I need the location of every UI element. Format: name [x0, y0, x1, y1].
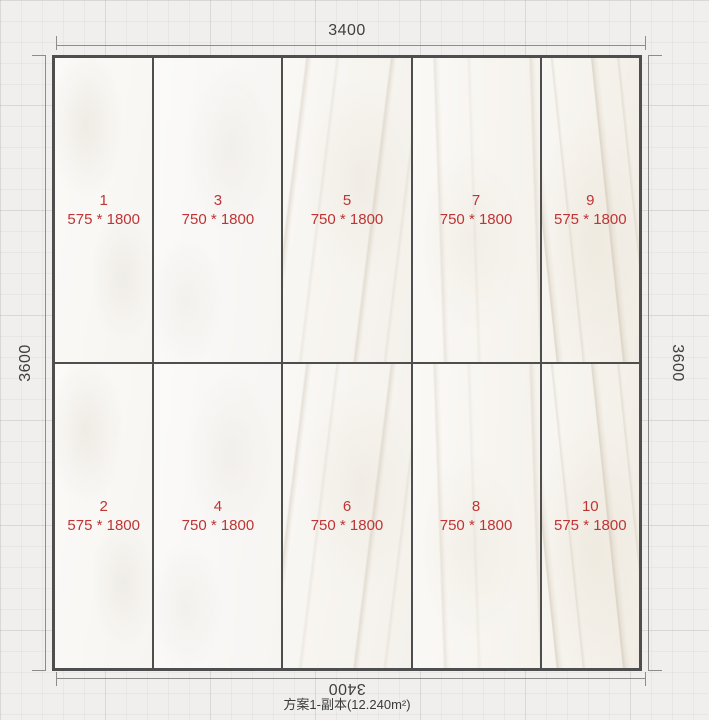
tile-cell-9[interactable]: 9 575 * 1800 — [542, 58, 639, 362]
tile-size: 750 * 1800 — [311, 516, 384, 536]
tile-label: 5 750 * 1800 — [311, 191, 384, 230]
left-dimension-line — [45, 55, 46, 671]
tile-size: 750 * 1800 — [311, 210, 384, 230]
tile-label: 8 750 * 1800 — [440, 497, 513, 536]
left-dimension-label: 3600 — [17, 344, 35, 382]
tile-label: 7 750 * 1800 — [440, 191, 513, 230]
tile-number: 2 — [67, 497, 140, 517]
right-dimension-tick-bottom — [648, 670, 662, 671]
tile-label: 6 750 * 1800 — [311, 497, 384, 536]
tile-size: 575 * 1800 — [554, 210, 627, 230]
tile-label: 1 575 * 1800 — [67, 191, 140, 230]
layout-canvas: 3400 3600 3600 3400 方案1-副本(12.240m²) 1 5… — [0, 0, 709, 720]
tile-size: 750 * 1800 — [440, 210, 513, 230]
right-dimension-line — [648, 55, 649, 671]
tile-number: 6 — [311, 497, 384, 517]
tile-number: 3 — [182, 191, 255, 211]
tile-number: 8 — [440, 497, 513, 517]
top-dimension-tick-left — [56, 36, 57, 50]
tile-number: 7 — [440, 191, 513, 211]
tile-number: 10 — [554, 497, 627, 517]
tile-cell-3[interactable]: 3 750 * 1800 — [154, 58, 281, 362]
tile-grid: 1 575 * 1800 3 750 * 1800 5 750 * 1800 7… — [52, 55, 642, 671]
tile-cell-5[interactable]: 5 750 * 1800 — [283, 58, 410, 362]
tile-size: 750 * 1800 — [182, 210, 255, 230]
tile-size: 575 * 1800 — [67, 210, 140, 230]
tile-label: 4 750 * 1800 — [182, 497, 255, 536]
tile-cell-7[interactable]: 7 750 * 1800 — [413, 58, 540, 362]
tile-label: 10 575 * 1800 — [554, 497, 627, 536]
top-dimension-line — [56, 45, 646, 46]
right-dimension-label: 3600 — [668, 344, 686, 382]
tile-size: 750 * 1800 — [182, 516, 255, 536]
tile-size: 750 * 1800 — [440, 516, 513, 536]
tile-number: 1 — [67, 191, 140, 211]
tile-number: 5 — [311, 191, 384, 211]
tile-size: 575 * 1800 — [554, 516, 627, 536]
tile-label: 9 575 * 1800 — [554, 191, 627, 230]
tile-size: 575 * 1800 — [67, 516, 140, 536]
left-dimension-tick-top — [32, 55, 46, 56]
tile-cell-4[interactable]: 4 750 * 1800 — [154, 364, 281, 668]
tile-label: 2 575 * 1800 — [67, 497, 140, 536]
right-dimension-tick-top — [648, 55, 662, 56]
tile-number: 4 — [182, 497, 255, 517]
left-dimension-tick-bottom — [32, 670, 46, 671]
bottom-dimension-tick-right — [645, 672, 646, 686]
tile-label: 3 750 * 1800 — [182, 191, 255, 230]
top-dimension-tick-right — [645, 36, 646, 50]
tile-cell-10[interactable]: 10 575 * 1800 — [542, 364, 639, 668]
tile-number: 9 — [554, 191, 627, 211]
tile-cell-1[interactable]: 1 575 * 1800 — [55, 58, 152, 362]
tile-cell-6[interactable]: 6 750 * 1800 — [283, 364, 410, 668]
top-dimension-label: 3400 — [52, 22, 642, 40]
tile-cell-2[interactable]: 2 575 * 1800 — [55, 364, 152, 668]
tile-cell-8[interactable]: 8 750 * 1800 — [413, 364, 540, 668]
plan-name-label: 方案1-副本(12.240m²) — [52, 694, 642, 713]
